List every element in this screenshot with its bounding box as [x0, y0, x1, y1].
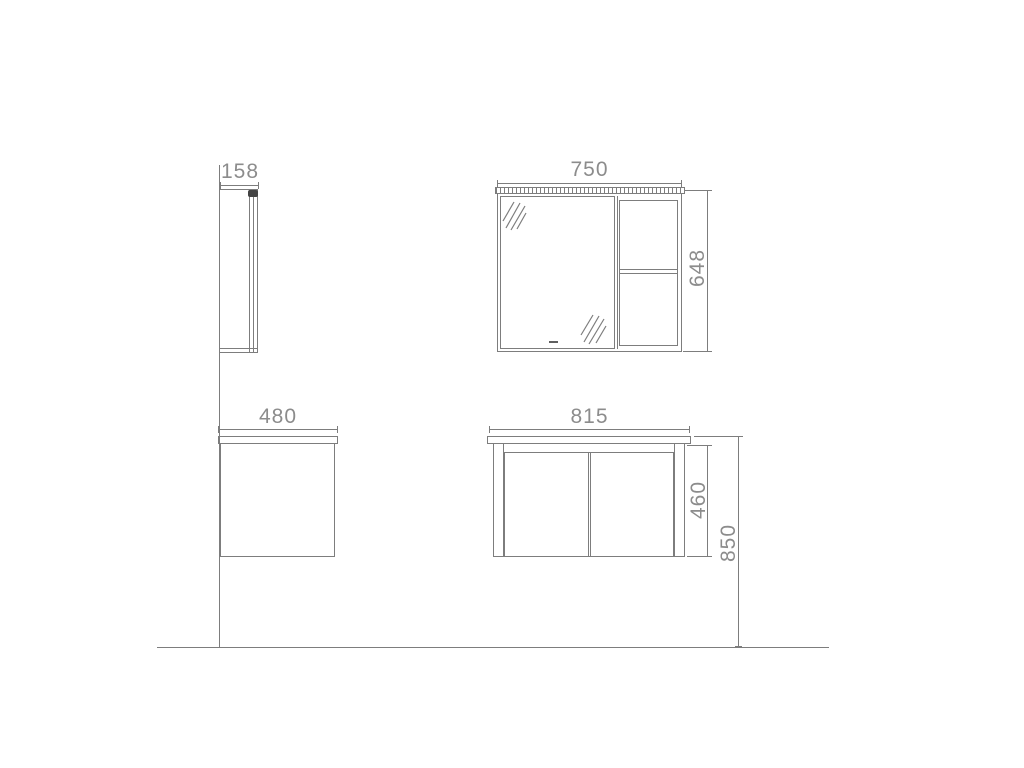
dim-750-tick-right [681, 180, 682, 187]
dim-750-tick-left [497, 180, 498, 187]
mirror-door-handle [549, 341, 558, 343]
door-divider-right-line [590, 452, 591, 557]
dim-850-tick-bottom [735, 646, 742, 647]
drawing-canvas: 158 750 [0, 0, 1024, 768]
vanity-left-panel [493, 443, 504, 557]
mirror-door-edge-line [617, 196, 618, 349]
side-cabinet-door-inner-line [253, 189, 254, 352]
mirror-reflection-icon [579, 312, 613, 346]
side-cabinet-bottom-inner-line [219, 348, 258, 349]
dim-750-label: 750 [497, 159, 682, 181]
shelf-line-lower [619, 273, 678, 274]
dim-460-tick-top [704, 445, 711, 446]
vanity-countertop [487, 436, 691, 444]
dim-815-label: 815 [489, 406, 690, 428]
dim-158-tick-left [220, 182, 221, 189]
dim-480-label: 480 [218, 406, 338, 428]
light-fixture-icon [248, 190, 258, 197]
dim-480-line [218, 429, 338, 430]
dim-460-label: 460 [688, 481, 710, 519]
dim-648-tick-top [704, 190, 711, 191]
dim-158-tick-right [258, 182, 259, 189]
side-cabinet-door-outer-line [249, 189, 250, 352]
dim-648-tick-bottom [704, 351, 711, 352]
vanity-doors [504, 452, 674, 557]
floor-line [157, 647, 829, 648]
door-divider-left-line [588, 452, 589, 557]
dim-850-tick-top [735, 436, 742, 437]
dim-750-line [497, 183, 682, 184]
vanity-side-body [220, 443, 335, 557]
dim-850-label: 850 [718, 524, 740, 562]
dim-648-label: 648 [687, 249, 709, 287]
mirror-reflection-icon [502, 200, 534, 232]
dim-158-line [220, 185, 259, 186]
dim-815-line [489, 429, 690, 430]
dim-460-tick-bottom [704, 556, 711, 557]
vanity-right-panel [674, 443, 685, 557]
shelf-line-upper [619, 269, 678, 270]
dim-158-label: 158 [218, 161, 262, 183]
